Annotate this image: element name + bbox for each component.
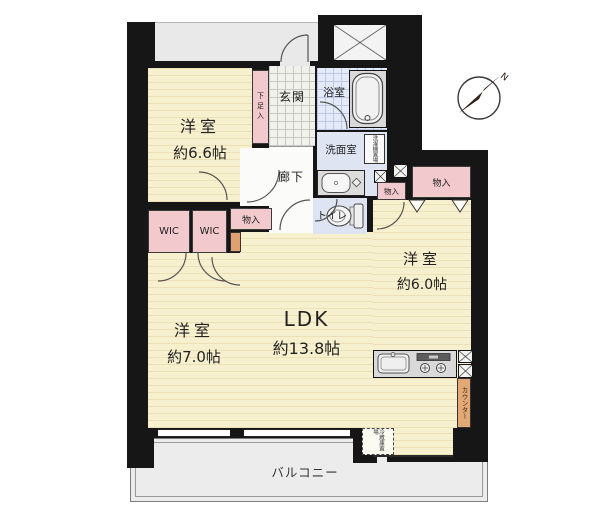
compass-icon: N [448, 62, 512, 126]
door-arc-bedroom2 [212, 257, 240, 285]
bedroom3-size: 約6.0帖 [397, 274, 447, 294]
bedroom1-name: 洋室 [180, 113, 220, 137]
floor-plan: 洗濯機置場 下足入 WIC WIC 物入 物入 物入 [0, 0, 600, 526]
door-arc-bedroom3 [377, 202, 404, 229]
closet-door-chevron-1 [409, 200, 425, 212]
door-arc-entrance [281, 35, 308, 62]
bedroom2-name: 洋室 [174, 317, 214, 341]
ldk-name: LDK [284, 307, 330, 331]
ldk-labels: LDK 約13.8帖 [240, 302, 373, 364]
door-arc-bathroom [320, 102, 347, 129]
ldk-size: 約13.8帖 [273, 335, 341, 359]
bathroom-label: 浴室 [316, 84, 352, 99]
entrance-label: 玄関 [271, 88, 313, 104]
closet-door-chevron-2 [452, 200, 468, 212]
bedroom3-name: 洋室 [403, 248, 441, 269]
compass-north-label: N [498, 71, 509, 83]
door-arc-bedroom1-a [199, 172, 227, 200]
bedroom1-size: 約6.6帖 [173, 142, 227, 163]
door-arc-wic-left [158, 253, 186, 281]
bedroom3-labels: 洋室 約6.0帖 [373, 244, 471, 298]
door-arc-hall-ldk [280, 200, 310, 230]
toilet-label: トイレ [314, 206, 350, 222]
bedroom2-labels: 洋室 約7.0帖 [148, 314, 240, 370]
bedroom2-size: 約7.0帖 [167, 346, 221, 367]
hallway-label: 廊下 [267, 168, 315, 184]
washroom-label: 洗面室 [316, 142, 366, 156]
balcony-label: バルコニー [250, 462, 360, 480]
bedroom1-labels: 洋室 約6.6帖 [148, 110, 252, 166]
